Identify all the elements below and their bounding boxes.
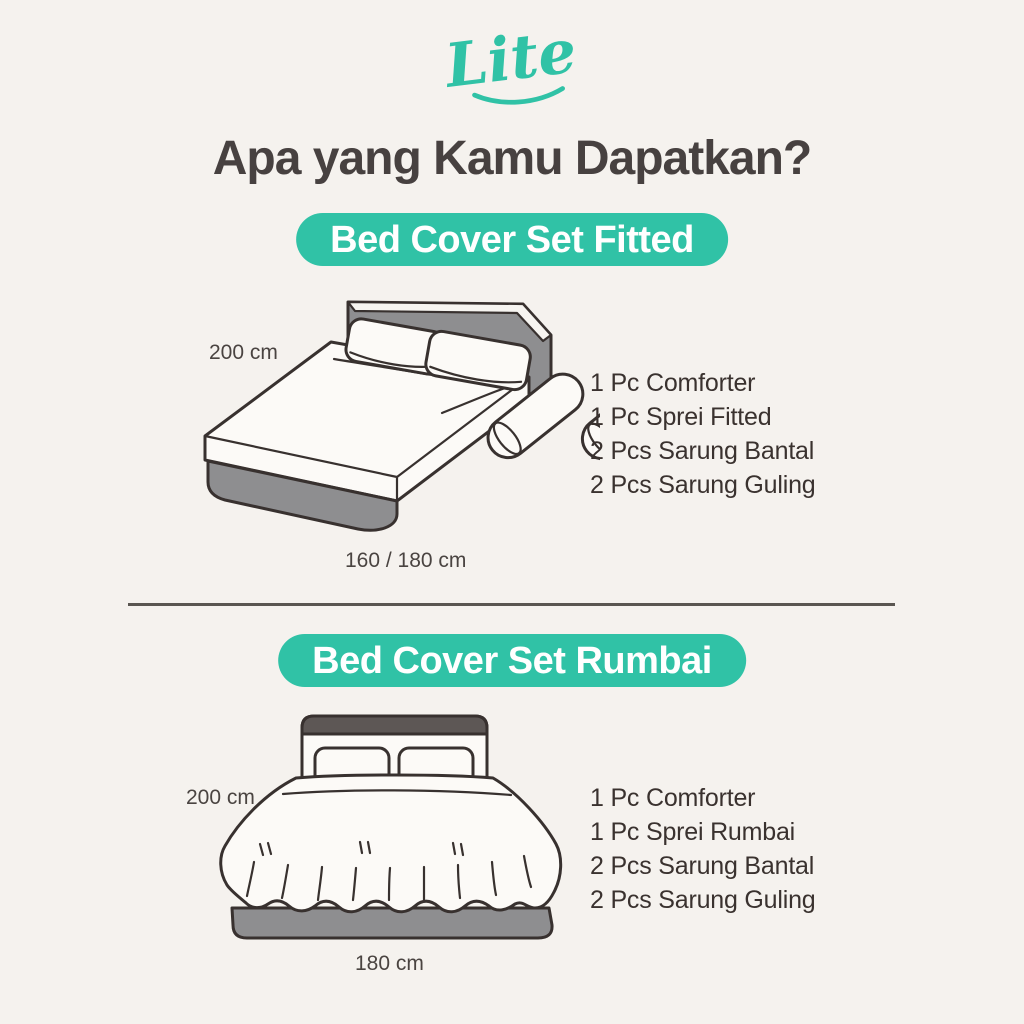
section-divider xyxy=(128,603,895,606)
list-item: 1 Pc Comforter xyxy=(590,781,816,815)
fitted-included-items-list: 1 Pc Comforter 1 Pc Sprei Fitted 2 Pcs S… xyxy=(590,366,816,502)
list-item: 2 Pcs Sarung Bantal xyxy=(590,434,816,468)
badge-bed-cover-set-fitted: Bed Cover Set Fitted xyxy=(296,213,728,266)
list-item: 2 Pcs Sarung Bantal xyxy=(590,849,816,883)
lite-logo-graphic: Lite xyxy=(437,18,587,114)
list-item: 1 Pc Sprei Rumbai xyxy=(590,815,816,849)
bed-base xyxy=(232,908,552,938)
lite-logo: Lite xyxy=(437,18,587,114)
product-infographic: Lite Apa yang Kamu Dapatkan? Bed Cover S… xyxy=(0,0,1024,1024)
list-item: 1 Pc Comforter xyxy=(590,366,816,400)
headboard-top-rail xyxy=(302,716,487,734)
list-item: 2 Pcs Sarung Guling xyxy=(590,468,816,502)
page-title: Apa yang Kamu Dapatkan? xyxy=(0,131,1024,186)
fitted-bed-illustration xyxy=(180,280,600,580)
badge-bed-cover-set-rumbai: Bed Cover Set Rumbai xyxy=(278,634,746,687)
list-item: 2 Pcs Sarung Guling xyxy=(590,883,816,917)
rumbai-bed-illustration xyxy=(175,695,585,970)
rumbai-included-items-list: 1 Pc Comforter 1 Pc Sprei Rumbai 2 Pcs S… xyxy=(590,781,816,917)
list-item: 1 Pc Sprei Fitted xyxy=(590,400,816,434)
fitted-width-dimension-label: 160 / 180 cm xyxy=(345,549,466,573)
rumbai-height-dimension-label: 200 cm xyxy=(186,786,255,810)
rumbai-width-dimension-label: 180 cm xyxy=(355,952,424,976)
fitted-height-dimension-label: 200 cm xyxy=(209,341,278,365)
